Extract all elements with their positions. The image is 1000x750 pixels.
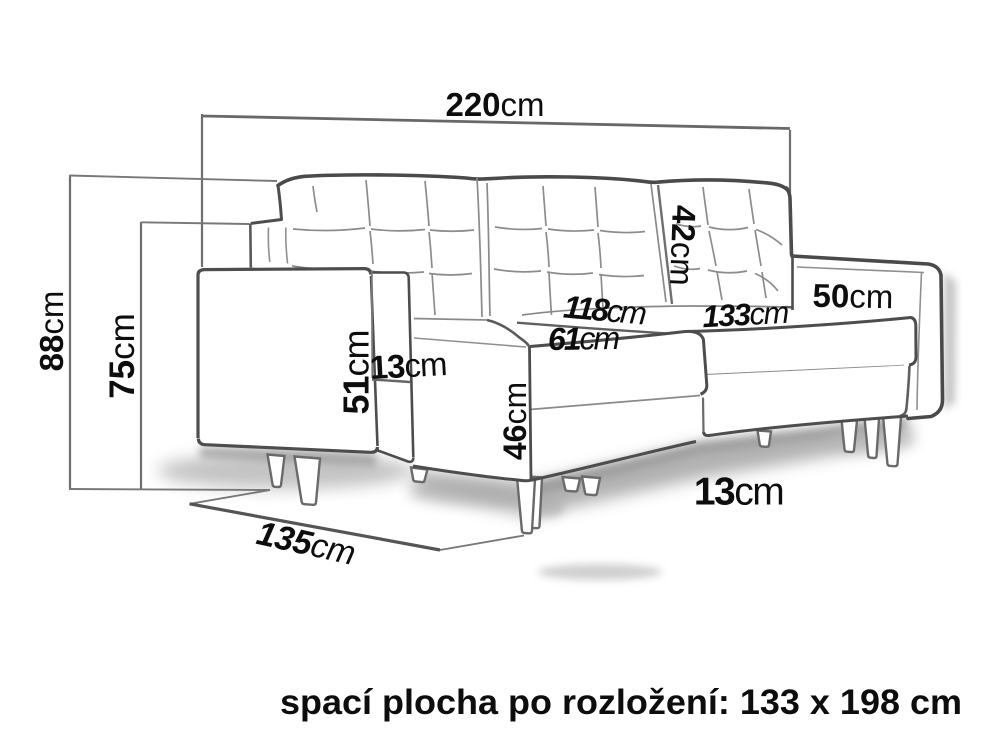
svg-text:46cm: 46cm xyxy=(497,382,533,460)
svg-text:spací plocha po rozložení: 133: spací plocha po rozložení: 133 x 198 cm xyxy=(280,682,962,722)
svg-text:61cm: 61cm xyxy=(548,320,620,357)
svg-text:220cm: 220cm xyxy=(445,86,544,123)
svg-text:88cm: 88cm xyxy=(33,291,70,372)
svg-text:42cm: 42cm xyxy=(664,205,704,287)
svg-text:133cm: 133cm xyxy=(701,294,789,333)
svg-text:75cm: 75cm xyxy=(103,313,142,399)
svg-text:13cm: 13cm xyxy=(694,470,783,513)
svg-text:50cm: 50cm xyxy=(812,276,893,314)
svg-text:13cm: 13cm xyxy=(369,345,448,386)
